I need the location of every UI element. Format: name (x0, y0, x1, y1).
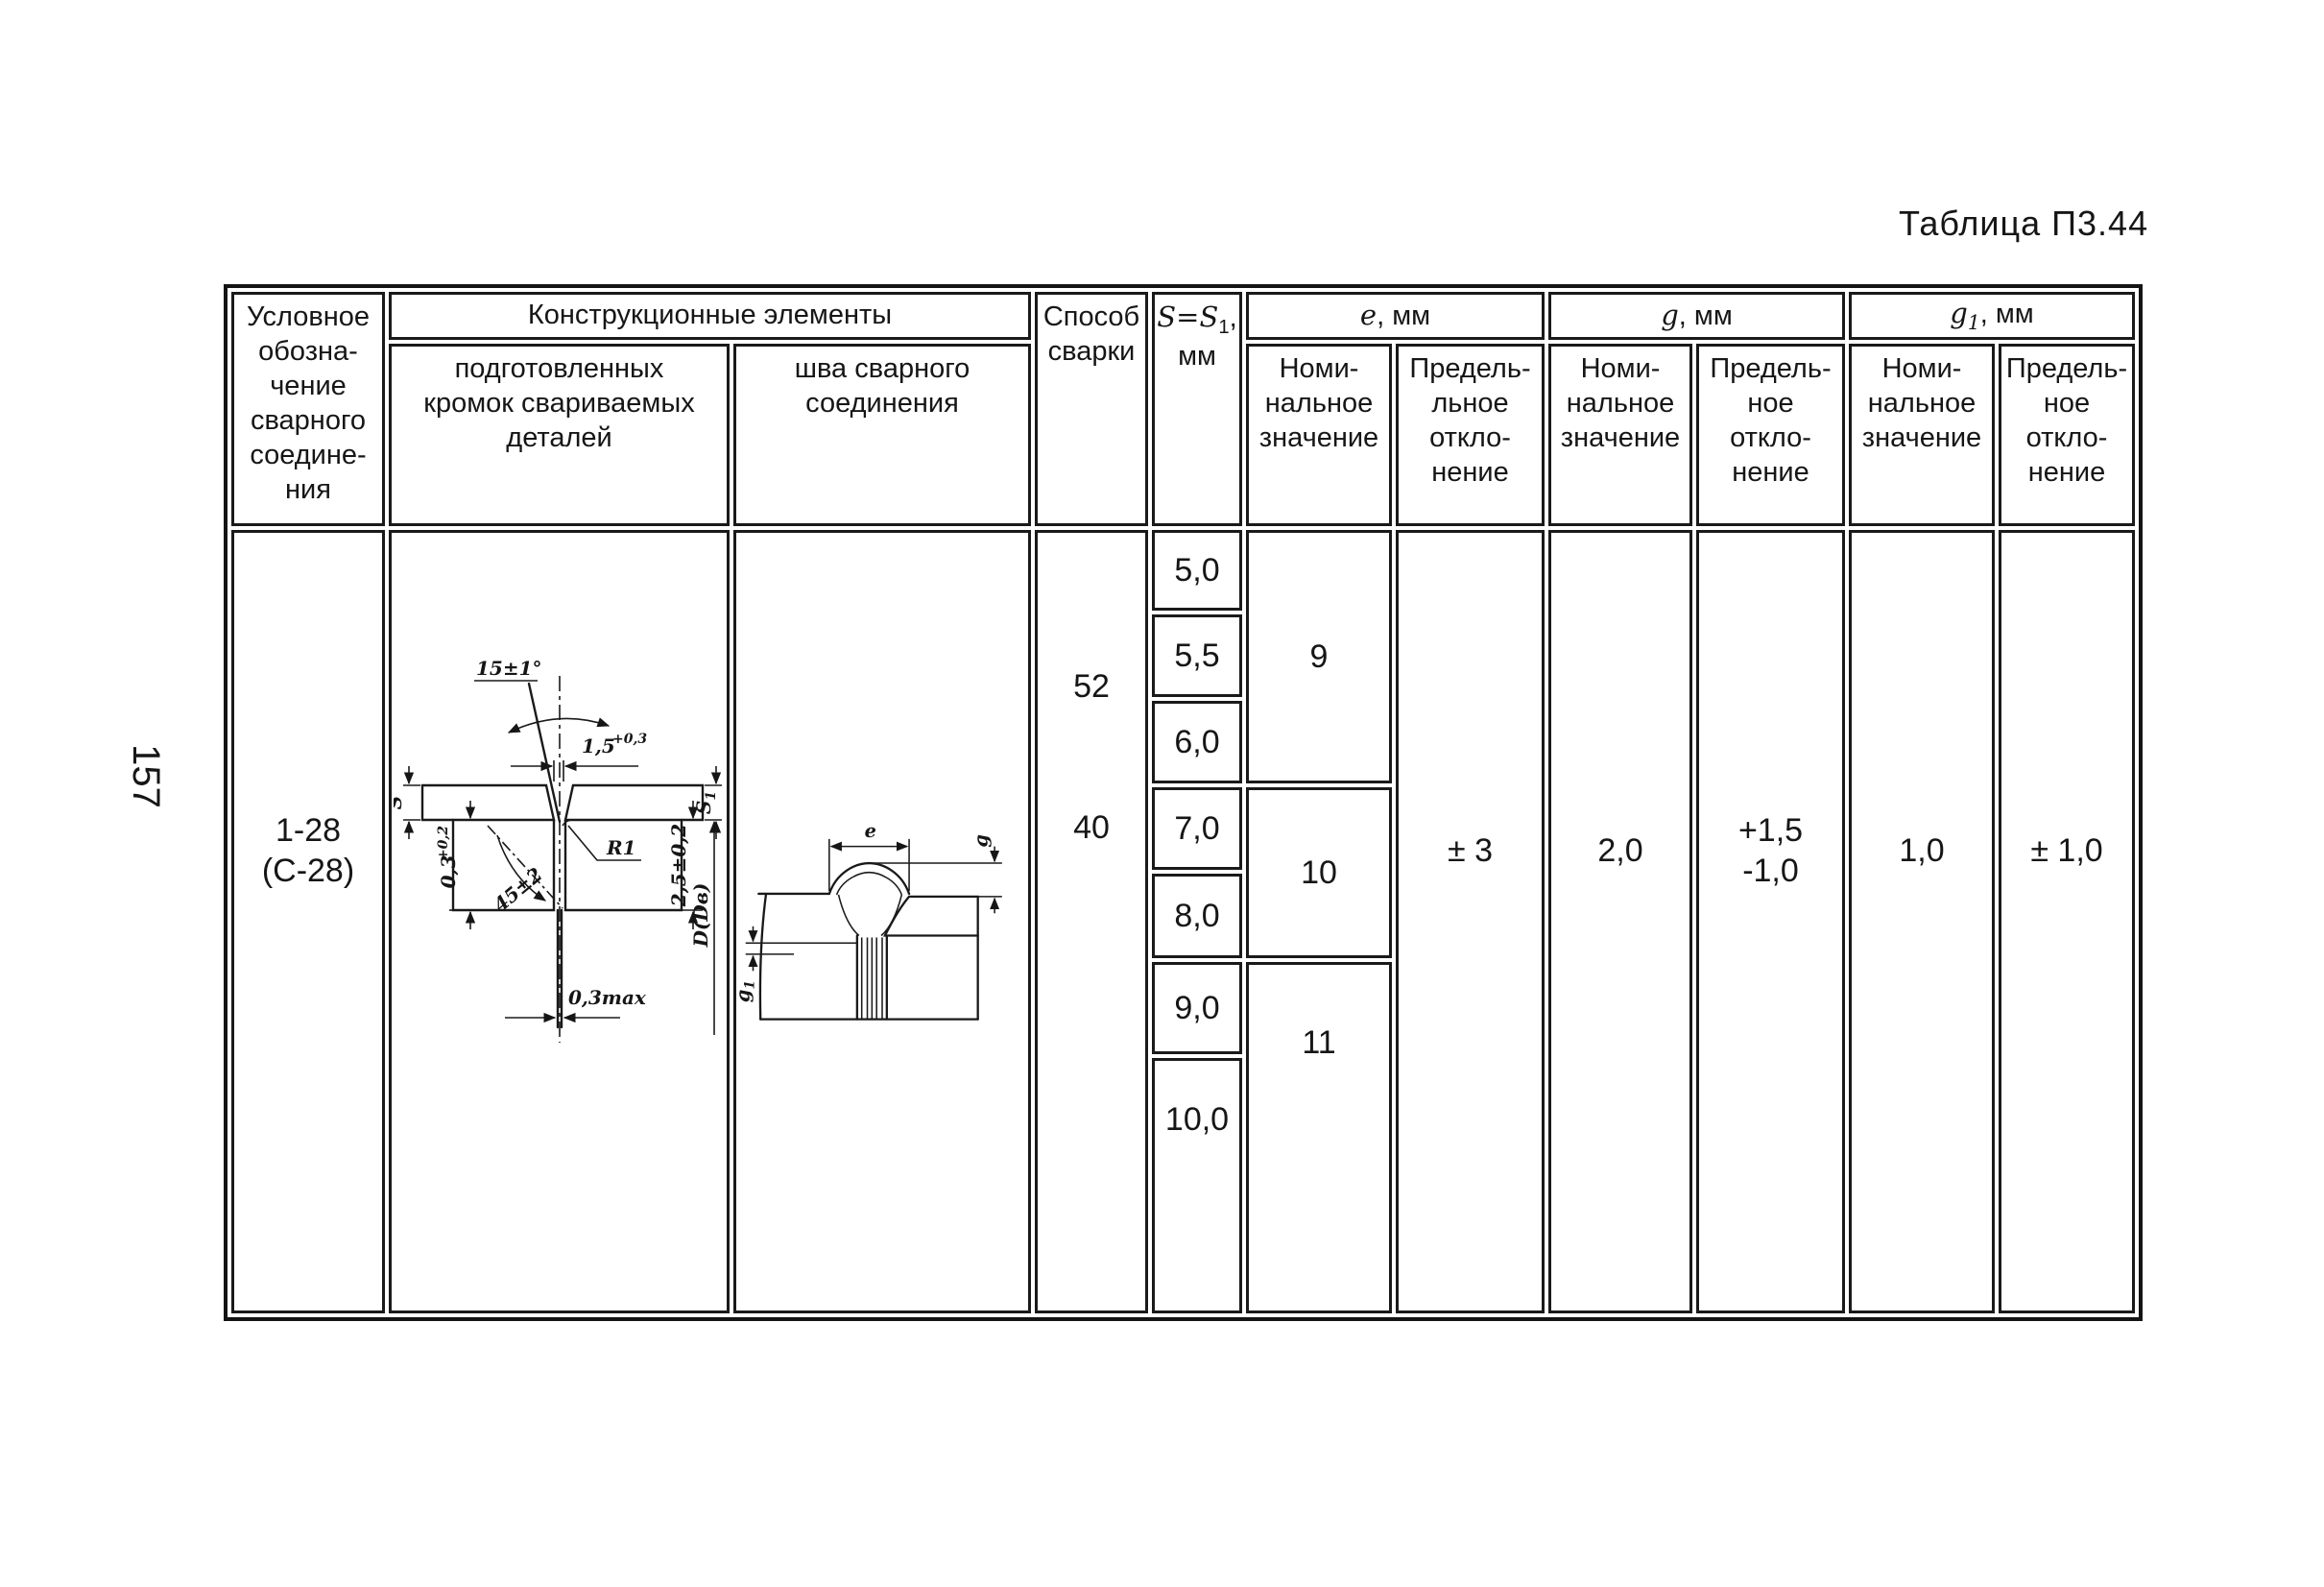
dim-root-gap-tolerance: +0,3 (612, 732, 647, 747)
header-g-nominal: Номи- нальное значение (1548, 344, 1692, 526)
dim-root-angle: 45±2 (489, 862, 546, 916)
welding-spec-table: Условное обозна- чение сварного соедине-… (224, 284, 2143, 1321)
g-nominal-cell: 2,0 (1548, 530, 1692, 1313)
e-unit: , мм (1377, 301, 1430, 331)
g1-nominal-cell: 1,0 (1849, 530, 1995, 1313)
s-value-cell: 9,0 (1152, 962, 1242, 1054)
edge-prep-drawing-cell: 15±1° 1,5 +0,3 S (389, 530, 730, 1313)
page-number: 157 (124, 744, 167, 808)
dim-diameter: D(Dв) (689, 882, 712, 948)
s-unit: мм (1157, 340, 1237, 374)
e-nominal-cell: 9 (1246, 530, 1392, 783)
header-e-nominal: Номи- нальное значение (1246, 344, 1392, 526)
s-symbol: S=S (1157, 301, 1218, 333)
weld-seam-drawing: e g g1 (738, 802, 1026, 1042)
table-row: 1-28 (С-28) (231, 530, 2135, 611)
s-value-cell: 5,0 (1152, 530, 1242, 611)
header-weld-seam: шва сварного соединения (733, 344, 1031, 526)
dim-s1-sub: 1 (704, 790, 719, 800)
dim-g1-base: g (738, 990, 755, 1003)
s-value-cell: 6,0 (1152, 701, 1242, 783)
dim-g1-root: g1 (738, 980, 757, 1002)
s-comma: , (1230, 302, 1237, 333)
welding-spec-table-wrap: Условное обозна- чение сварного соедине-… (224, 284, 2143, 1321)
g1-symbol: g (1950, 297, 1968, 329)
header-e-deviation: Предель- льное откло- нение (1396, 344, 1545, 526)
g-deviation-cell: +1,5 -1,0 (1696, 530, 1845, 1313)
e-deviation-cell: ± 3 (1396, 530, 1545, 1313)
dim-s1-base: S (692, 800, 715, 813)
weld-method-value: 40 (1040, 807, 1143, 849)
dim-step-tolerance: +0,2 (436, 825, 451, 859)
e-nominal-cell: 10 (1246, 787, 1392, 958)
header-g1-group: g1, мм (1849, 292, 2135, 340)
header-joint-designation: Условное обозна- чение сварного соедине-… (231, 292, 385, 526)
s-value-cell: 8,0 (1152, 874, 1242, 958)
g-unit: , мм (1679, 301, 1733, 331)
header-g1-nominal: Номи- нальное значение (1849, 344, 1995, 526)
header-weld-method: Способ сварки (1035, 292, 1148, 526)
edge-prep-drawing: 15±1° 1,5 +0,3 S (394, 584, 725, 1064)
scanned-document-page: Таблица П3.44 157 Условное обозна- чение… (0, 0, 2324, 1587)
dim-root-radius: R1 (606, 836, 636, 859)
g1-deviation-cell: ± 1,0 (1999, 530, 2135, 1313)
dim-root-gap-width: 1,5 (582, 734, 615, 757)
header-prepared-edges: подготовленных кромок свариваемых детале… (389, 344, 730, 526)
g1-subscript: 1 (1968, 311, 1980, 334)
weld-method-cell: 52 40 (1035, 530, 1148, 1313)
weld-seam-drawing-wrap: e g g1 (738, 761, 1026, 1052)
header-g-deviation: Предель- ное откло- нение (1696, 344, 1845, 526)
s-value-cell: 10,0 (1152, 1058, 1242, 1313)
weld-method-value: 52 (1040, 666, 1143, 708)
header-g-group: g, мм (1548, 292, 1845, 340)
e-symbol: e (1360, 299, 1377, 331)
header-g1-deviation: Предель- ное откло- нение (1999, 344, 2135, 526)
s-subscript: 1 (1218, 317, 1229, 338)
dim-e-width: e (865, 820, 876, 842)
dim-g-reinforcement: g (970, 834, 992, 848)
header-s-thickness: S=S1,мм (1152, 292, 1242, 526)
header-construction-elements: Конструкционные элементы (389, 292, 1031, 340)
table-caption: Таблица П3.44 (1899, 204, 2148, 244)
dim-s1-thickness: S1 (692, 790, 719, 813)
dim-root-gap-max: 0,3max (568, 986, 647, 1009)
s-value-cell: 7,0 (1152, 787, 1242, 870)
g-symbol: g (1661, 299, 1679, 331)
g1-unit: , мм (1980, 299, 2034, 329)
dim-g1-sub: 1 (742, 980, 757, 989)
weld-seam-drawing-cell: e g g1 (733, 530, 1031, 1313)
dim-lip-height: 2,5±0,2 (667, 823, 690, 906)
s-value-cell: 5,5 (1152, 614, 1242, 697)
header-e-group: e, мм (1246, 292, 1545, 340)
e-nominal-cell: 11 (1246, 962, 1392, 1313)
dim-s-thickness: S (394, 795, 406, 808)
dim-bevel-angle: 15±1° (476, 657, 542, 680)
joint-designation-cell: 1-28 (С-28) (231, 530, 385, 1313)
